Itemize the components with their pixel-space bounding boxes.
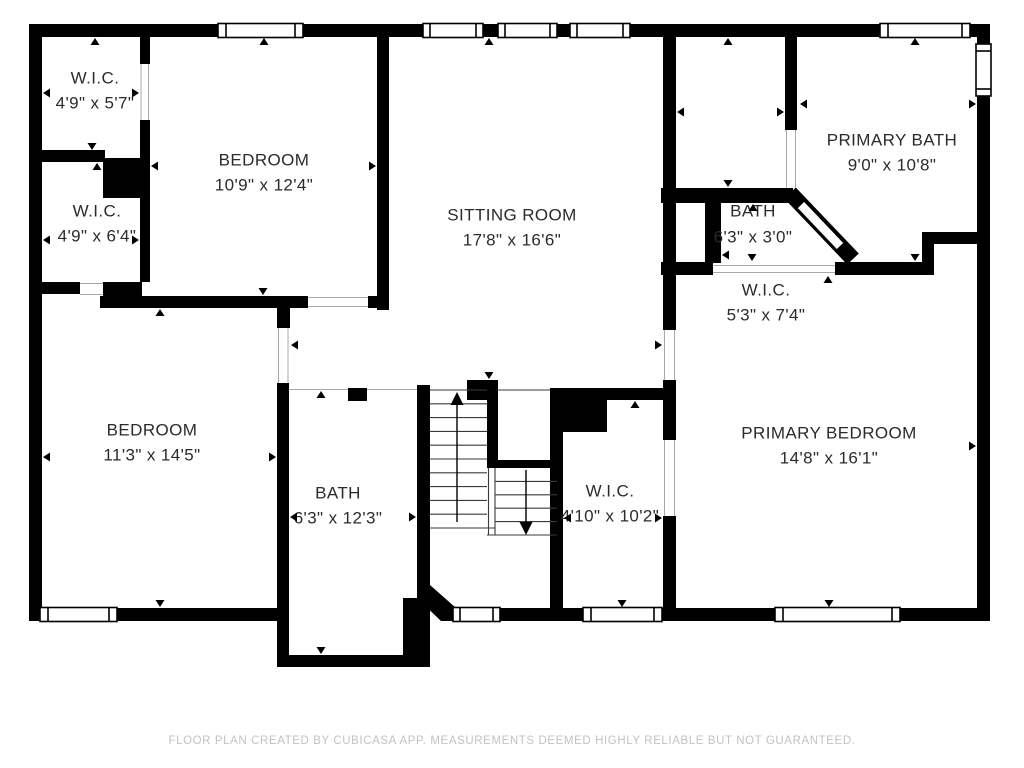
room-label-wic-top-left: W.I.C. bbox=[71, 68, 120, 87]
room-label-primary-bedroom: PRIMARY BEDROOM bbox=[741, 423, 916, 442]
measure-arrow-up bbox=[93, 163, 102, 170]
room-label-bedroom-left: BEDROOM bbox=[107, 420, 198, 439]
measure-arrow-right bbox=[969, 100, 976, 109]
measure-arrow-up bbox=[91, 38, 100, 45]
measure-arrow-down bbox=[259, 288, 268, 295]
wall-left bbox=[29, 24, 42, 621]
room-dims-wic-primary-hall: 5'3" x 7'4" bbox=[727, 305, 806, 324]
measure-arrow-up bbox=[724, 38, 733, 45]
measure-arrow-up bbox=[485, 38, 494, 45]
measure-arrow-right bbox=[409, 513, 416, 522]
window bbox=[775, 608, 900, 622]
measure-arrow-down bbox=[485, 372, 494, 379]
window bbox=[218, 24, 303, 38]
window bbox=[570, 24, 630, 38]
measure-arrow-up bbox=[317, 391, 326, 398]
measure-arrow-left bbox=[151, 162, 158, 171]
room-dims-bath-middle: 6'3" x 12'3" bbox=[294, 508, 383, 527]
wall-right bbox=[977, 24, 990, 621]
windows bbox=[40, 24, 991, 622]
measure-arrow-right bbox=[777, 108, 784, 117]
stair-up-arrow bbox=[451, 392, 464, 522]
measure-arrow-left bbox=[291, 341, 298, 350]
wall-suite-upper bbox=[663, 24, 676, 330]
room-dims-primary-bath: 9'0" x 10'8" bbox=[848, 155, 937, 174]
wall-stairs-mid bbox=[487, 398, 498, 462]
measure-arrow-right bbox=[655, 341, 662, 350]
measure-arrow-down bbox=[618, 600, 627, 607]
measure-arrow-down bbox=[825, 600, 834, 607]
room-label-wic-primary-hall: W.I.C. bbox=[742, 280, 791, 299]
measure-arrow-up bbox=[824, 276, 833, 283]
measure-arrow-left bbox=[43, 453, 50, 462]
measure-arrow-up bbox=[631, 401, 640, 408]
room-label-wic-left: W.I.C. bbox=[73, 201, 122, 220]
window bbox=[40, 608, 117, 622]
wall-wic-center-top bbox=[550, 388, 665, 400]
wall-bedroom-left-top bbox=[100, 296, 308, 308]
wall-suite-top-a bbox=[661, 262, 713, 275]
room-dims-bedroom-top: 10'9" x 12'4" bbox=[215, 175, 313, 194]
wall-suite-top-b bbox=[835, 262, 930, 275]
window bbox=[453, 608, 500, 622]
measure-arrow-down bbox=[317, 647, 326, 654]
room-label-bedroom-top: BEDROOM bbox=[219, 150, 310, 169]
measure-arrow-right bbox=[269, 453, 276, 462]
wall-suite-mid bbox=[663, 380, 676, 440]
window bbox=[423, 24, 483, 38]
wall-bath-bumpout-corner bbox=[403, 598, 430, 655]
diagonal-door-primary-bath bbox=[790, 193, 853, 259]
wall-wic1-bottom bbox=[29, 150, 105, 162]
wall-wic2-bottom bbox=[29, 282, 80, 294]
room-dims-sitting-room: 17'8" x 16'6" bbox=[463, 230, 561, 249]
room-label-sitting-room: SITTING ROOM bbox=[447, 205, 576, 224]
floor-plan-canvas: W.I.C.4'9" x 5'7"BEDROOM10'9" x 12'4"W.I… bbox=[0, 0, 1024, 768]
wall-wic-block-upper bbox=[103, 158, 142, 198]
window bbox=[583, 608, 662, 622]
wall-bottom-right bbox=[441, 608, 990, 621]
measure-arrow-left bbox=[800, 100, 807, 109]
measure-arrow-down bbox=[911, 254, 920, 261]
measure-arrow-right bbox=[969, 442, 976, 451]
measure-arrow-down bbox=[724, 180, 733, 187]
measure-arrow-right bbox=[132, 89, 139, 98]
measure-arrow-left bbox=[722, 251, 729, 260]
stair-down-arrow bbox=[520, 470, 533, 535]
wall-bath-top-stub bbox=[348, 388, 367, 401]
window bbox=[498, 24, 557, 38]
measure-arrow-left bbox=[43, 236, 50, 245]
room-dims-wic-top-left: 4'9" x 5'7" bbox=[56, 93, 135, 112]
measure-arrow-up bbox=[260, 38, 269, 45]
window bbox=[880, 24, 970, 38]
wall-stairs-bar bbox=[487, 460, 557, 468]
room-dims-bath-small: 6'3" x 3'0" bbox=[714, 227, 793, 246]
room-dims-wic-center: 4'10" x 10'2" bbox=[561, 506, 659, 525]
room-dims-primary-bedroom: 14'8" x 16'1" bbox=[780, 448, 878, 467]
wall-bath-jog-horiz bbox=[922, 232, 985, 244]
measure-arrow-right bbox=[369, 162, 376, 171]
wall-wic1-right-upper bbox=[140, 37, 150, 64]
measure-arrow-up bbox=[911, 38, 920, 45]
room-label-bath-middle: BATH bbox=[315, 483, 361, 502]
window bbox=[976, 44, 991, 96]
room-label-primary-bath: PRIMARY BATH bbox=[827, 130, 957, 149]
room-dims-wic-left: 4'9" x 6'4" bbox=[58, 226, 137, 245]
measure-arrow-down bbox=[156, 600, 165, 607]
measure-arrow-up bbox=[156, 309, 165, 316]
measure-arrow-left bbox=[43, 89, 50, 98]
floor-plan-svg: W.I.C.4'9" x 5'7"BEDROOM10'9" x 12'4"W.I… bbox=[0, 0, 1024, 768]
walls bbox=[29, 24, 990, 667]
footer-disclaimer: FLOOR PLAN CREATED BY CUBICASA APP. MEAS… bbox=[168, 735, 855, 747]
room-dims-bedroom-left: 11'3" x 14'5" bbox=[103, 445, 200, 464]
measure-arrow-down bbox=[88, 143, 97, 150]
wall-bath-left bbox=[277, 383, 289, 667]
wall-bath-bumpout-bottom bbox=[277, 655, 430, 667]
room-label-wic-center: W.I.C. bbox=[586, 481, 635, 500]
measure-arrow-down bbox=[748, 254, 757, 261]
wall-wc-right bbox=[785, 37, 797, 130]
wall-corridor-left-stub bbox=[277, 308, 290, 328]
wall-stairs-left bbox=[417, 385, 430, 587]
measure-arrow-left bbox=[677, 108, 684, 117]
wall-bedroom-top-right bbox=[377, 37, 389, 310]
wall-suite-lower bbox=[663, 516, 676, 608]
wall-wic1-right-lower bbox=[140, 120, 150, 282]
